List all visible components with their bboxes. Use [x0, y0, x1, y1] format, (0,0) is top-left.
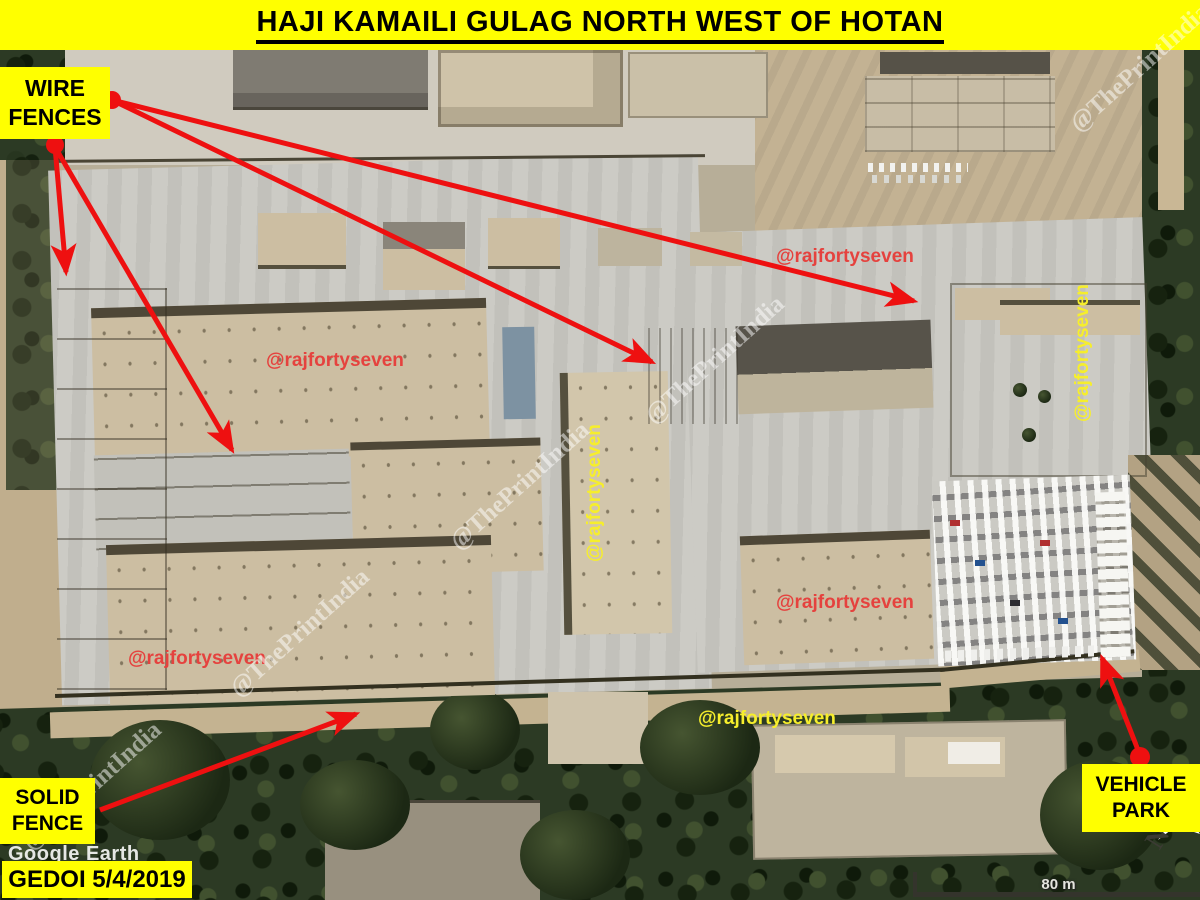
building: [865, 76, 1055, 152]
scale-label: 80 m: [1041, 877, 1075, 892]
parked-cars-row: [868, 163, 968, 172]
car: [1040, 540, 1050, 546]
car: [975, 560, 985, 566]
building: [438, 50, 623, 127]
building: [880, 52, 1050, 74]
wire-fences-line1: WIRE: [25, 74, 85, 103]
solid-fence-line2: FENCE: [12, 811, 83, 837]
building: [258, 213, 346, 269]
vehicle-park-line1: VEHICLE: [1095, 772, 1186, 798]
tree-blob: [430, 690, 520, 770]
fenced-yards-grid: [57, 288, 167, 690]
dark-roof-building: [736, 320, 934, 415]
annotated-satellite-image: @rajfortyseven @rajfortyseven @rajfortys…: [0, 0, 1200, 900]
building: [1000, 300, 1140, 335]
tree-blob: [1038, 390, 1051, 403]
building: [488, 218, 560, 269]
watermark-rajfortyseven: @rajfortyseven: [266, 350, 404, 372]
car: [950, 520, 960, 526]
tree-shadow-area: [1128, 455, 1200, 670]
watermark-rajfortyseven-vertical: @rajfortyseven: [1072, 284, 1094, 422]
scale-bar: 80 m: [913, 872, 1200, 897]
building: [233, 50, 428, 110]
blue-roof-feature: [502, 327, 536, 420]
watermark-rajfortyseven: @rajfortyseven: [776, 592, 914, 614]
date-stamp-label: GEDOI 5/4/2019: [2, 861, 192, 898]
date-stamp-text: GEDOI 5/4/2019: [8, 865, 185, 895]
building: [598, 228, 662, 266]
tree-blob: [520, 810, 630, 900]
building: [383, 222, 465, 290]
building: [628, 52, 768, 118]
car: [1010, 600, 1020, 606]
wire-fences-label: WIRE FENCES: [0, 67, 110, 139]
parked-cars-row: [872, 175, 962, 183]
tree-blob: [300, 760, 410, 850]
watermark-rajfortyseven-vertical: @rajfortyseven: [584, 424, 606, 562]
building: [775, 735, 895, 773]
car: [1058, 618, 1068, 624]
wire-fences-line2: FENCES: [8, 103, 101, 132]
title-banner: HAJI KAMAILI GULAG NORTH WEST OF HOTAN: [0, 0, 1200, 50]
carport-roof: [1095, 492, 1131, 658]
watermark-rajfortyseven: @rajfortyseven: [698, 708, 836, 730]
building-white-roof: [948, 742, 1000, 764]
compound-bottom-center: [548, 692, 648, 764]
orchard-road: [1158, 50, 1184, 210]
watermark-rajfortyseven: @rajfortyseven: [776, 246, 914, 268]
page-title: HAJI KAMAILI GULAG NORTH WEST OF HOTAN: [256, 6, 943, 44]
tree-blob: [1013, 383, 1027, 397]
vehicle-park-label: VEHICLE PARK: [1082, 764, 1200, 832]
vehicle-park-line2: PARK: [1112, 798, 1170, 824]
building: [690, 232, 742, 266]
solid-fence-line1: SOLID: [15, 785, 79, 811]
tree-blob: [1022, 428, 1036, 442]
solid-fence-label: SOLID FENCE: [0, 778, 95, 844]
